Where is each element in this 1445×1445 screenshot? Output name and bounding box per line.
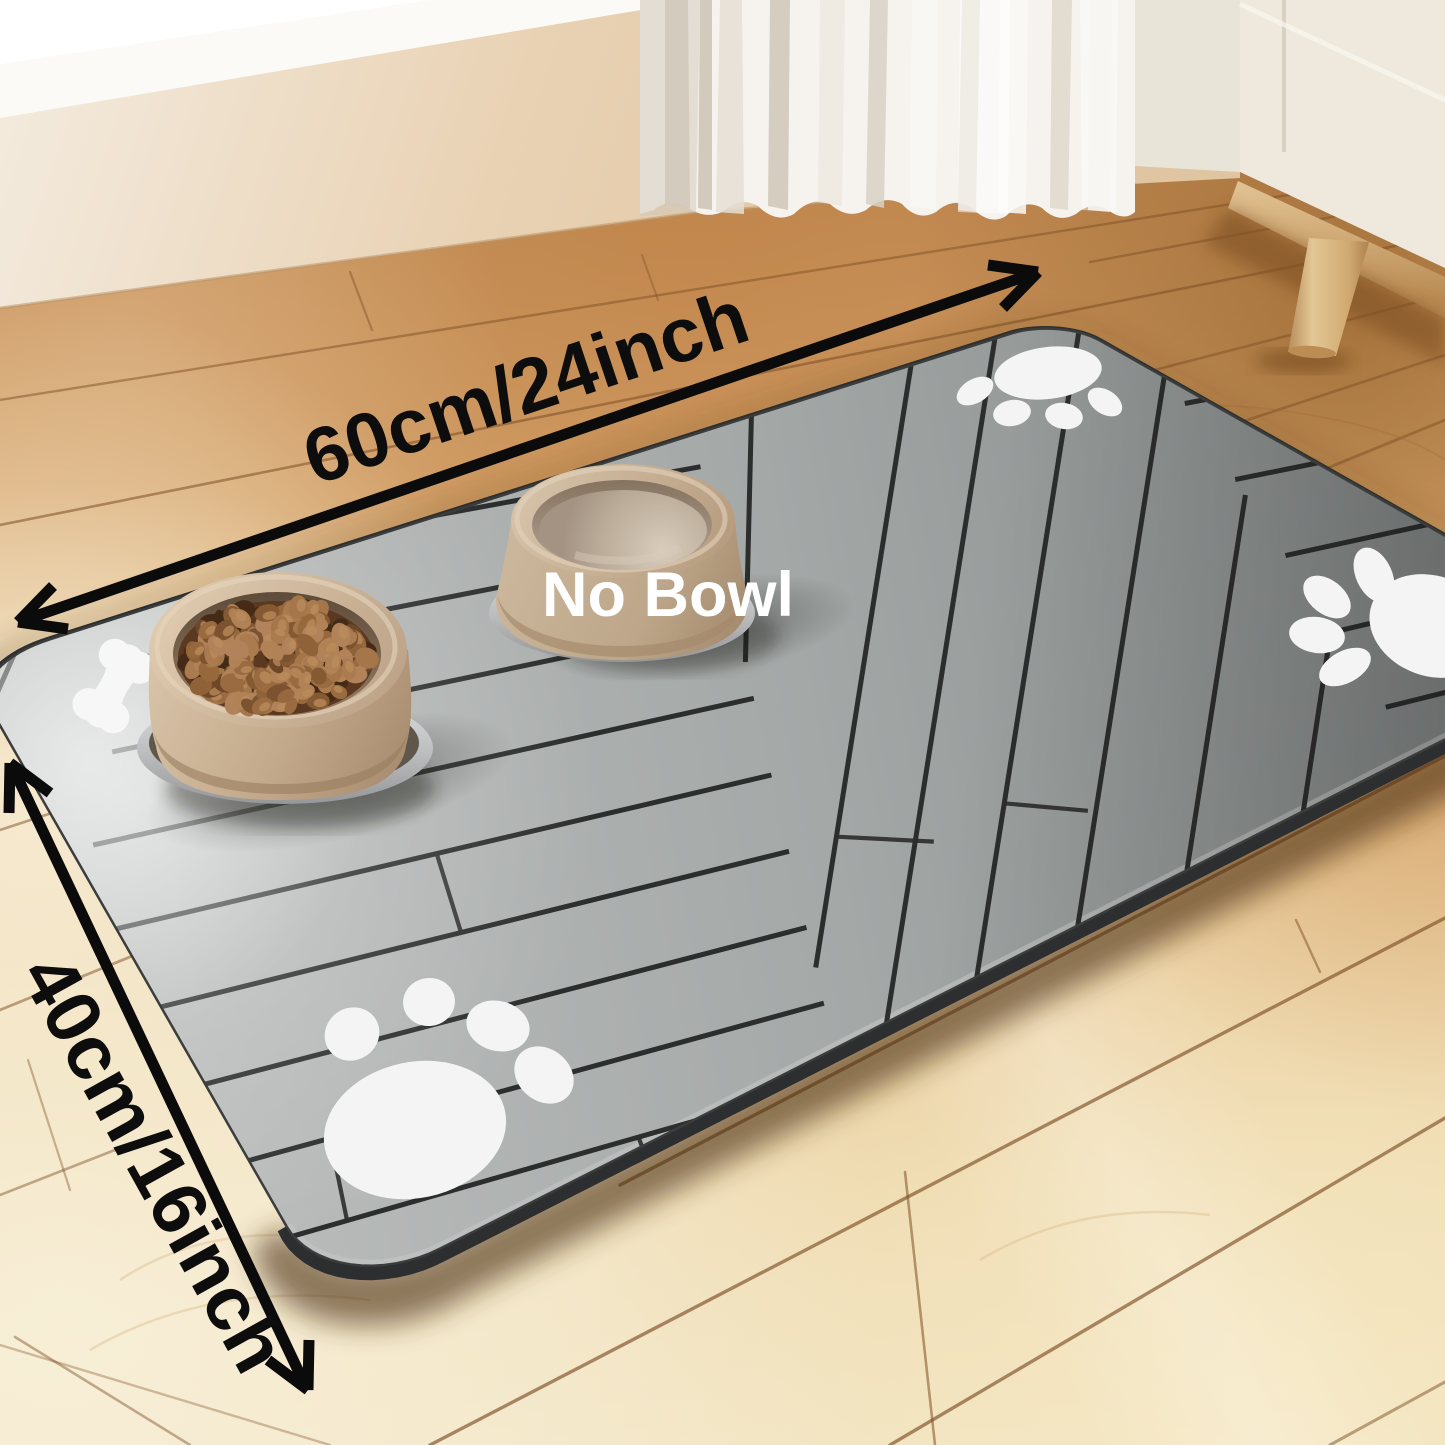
svg-text:No Bowl: No Bowl [542, 560, 794, 630]
